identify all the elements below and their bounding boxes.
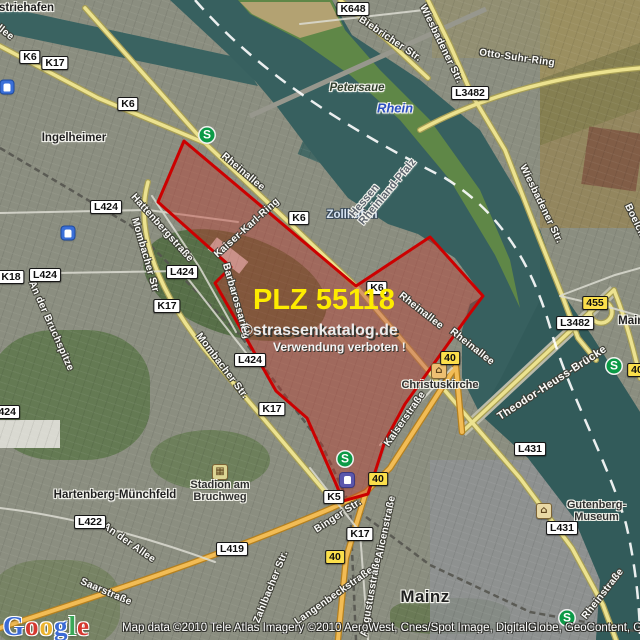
google-logo-letter: e <box>77 611 90 640</box>
google-logo-letter: G <box>3 611 25 640</box>
map-base-svg <box>0 0 640 640</box>
map-canvas[interactable]: SSSS⌂▦⌂ alleeRheinalleeRheinalleeRheinal… <box>0 0 640 640</box>
google-logo-letter: o <box>25 611 40 640</box>
copyright-attribution: Map data ©2010 Tele Atlas Imagery ©2010 … <box>122 622 640 634</box>
google-logo-letter: g <box>54 611 69 640</box>
google-logo: Google <box>3 611 90 640</box>
google-logo-letter: l <box>69 611 78 640</box>
google-logo-letter: o <box>40 611 55 640</box>
